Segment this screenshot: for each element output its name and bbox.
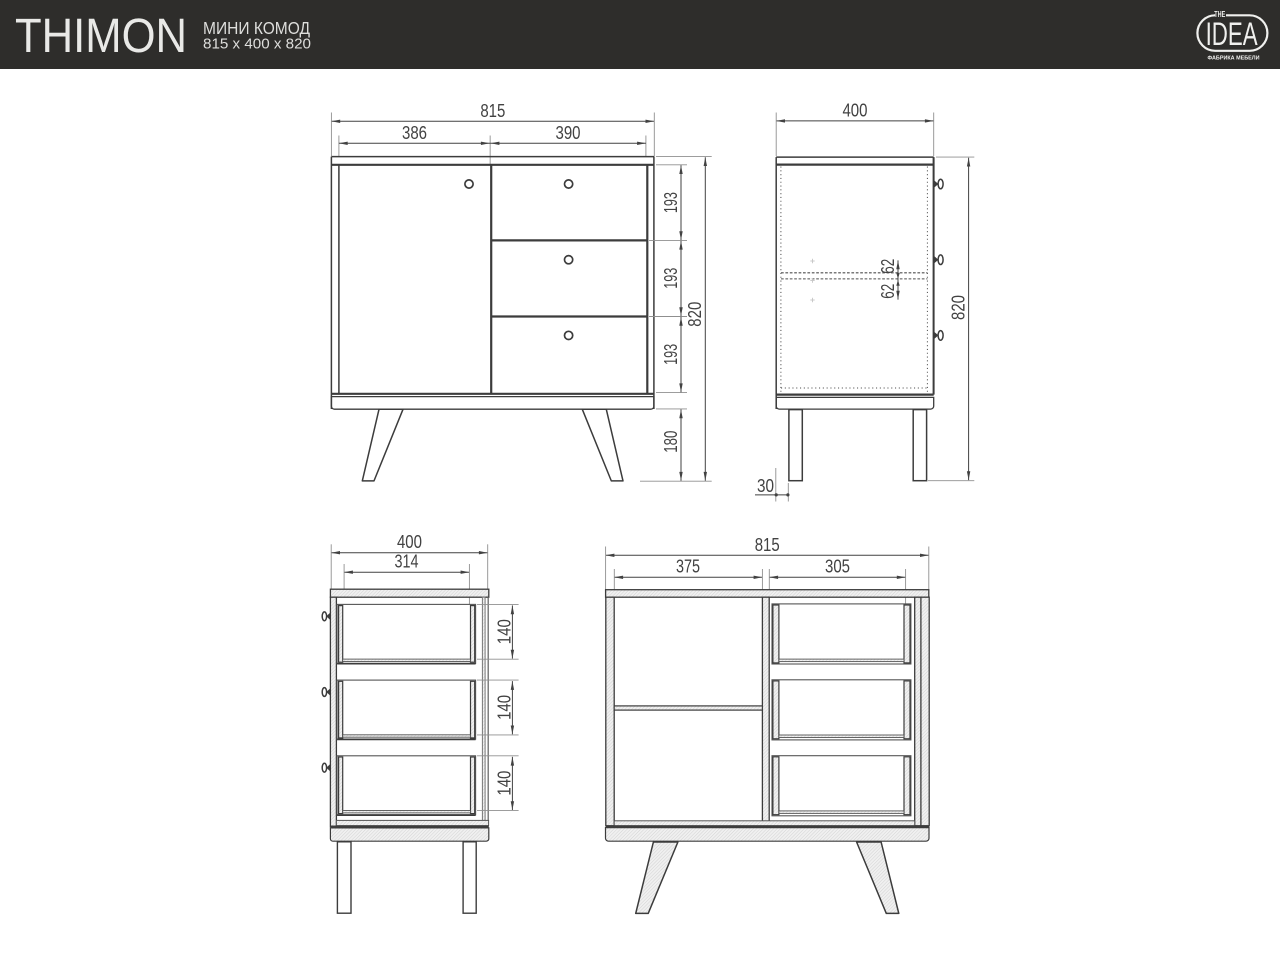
svg-text:815: 815 [755,535,780,555]
svg-text:820: 820 [948,295,968,320]
svg-text:390: 390 [556,123,581,143]
svg-text:375: 375 [676,557,700,577]
svg-text:400: 400 [842,100,867,120]
svg-text:400: 400 [397,532,422,552]
svg-text:140: 140 [494,619,514,644]
svg-text:140: 140 [494,695,514,720]
svg-text:THIMON: THIMON [15,10,187,63]
svg-text:193: 193 [661,268,681,289]
svg-text:IDEA: IDEA [1206,16,1258,52]
svg-text:ФАБРИКА МЕБЕЛИ: ФАБРИКА МЕБЕЛИ [1208,55,1260,61]
svg-text:62: 62 [878,284,898,299]
svg-text:62: 62 [878,259,898,274]
svg-text:30: 30 [757,476,774,496]
svg-text:815 x 400 x 820: 815 x 400 x 820 [203,36,311,53]
svg-text:815: 815 [480,101,505,121]
svg-text:820: 820 [685,302,705,327]
svg-text:180: 180 [661,431,681,453]
svg-text:305: 305 [825,557,850,577]
svg-text:193: 193 [661,344,681,365]
svg-text:193: 193 [661,192,681,213]
svg-text:140: 140 [494,771,514,796]
svg-text:314: 314 [395,552,419,572]
svg-text:386: 386 [402,123,427,143]
